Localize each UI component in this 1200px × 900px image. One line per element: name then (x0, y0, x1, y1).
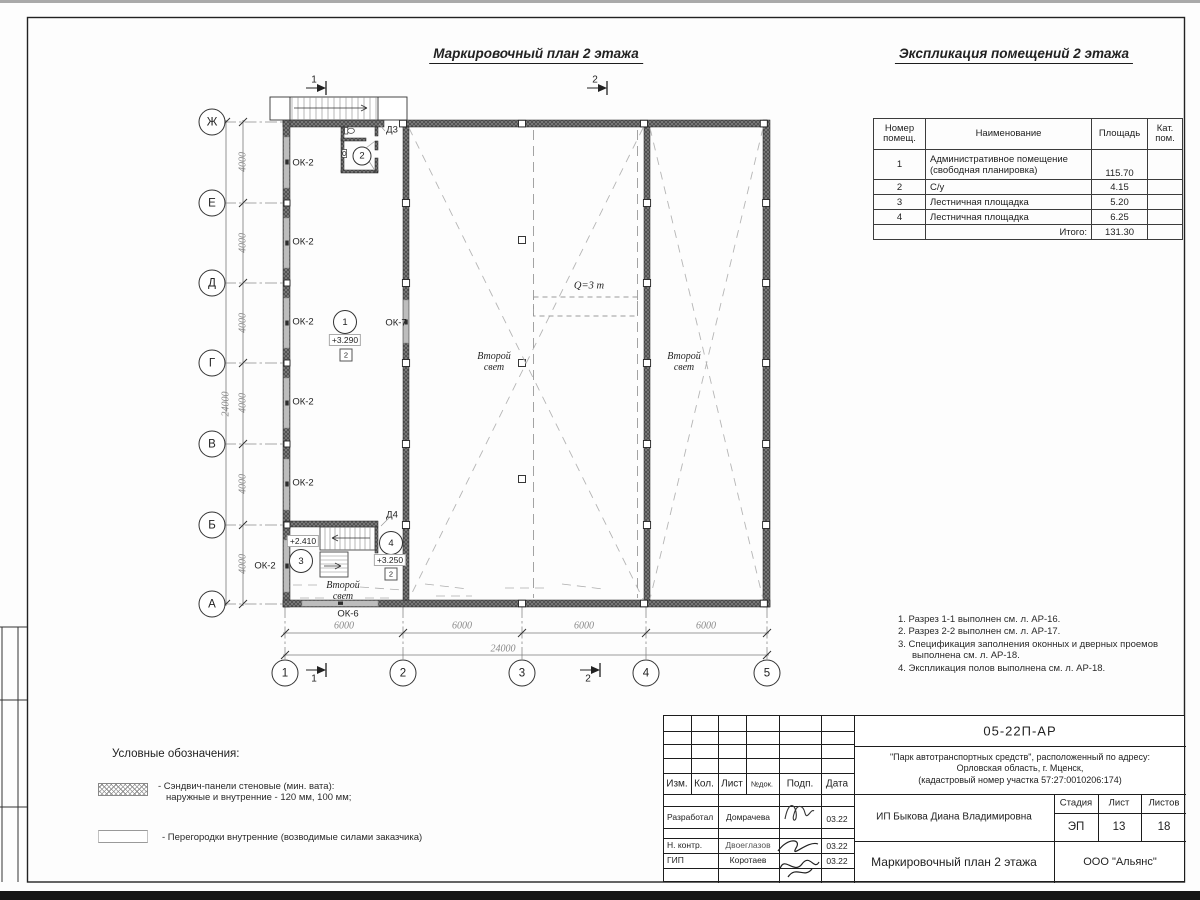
tb-date-2: 03.22 (826, 841, 847, 851)
crane-capacity-label: Q=3 т (574, 281, 604, 292)
notes-list: 1. Разрез 1-1 выполнен см. л. АР-16.2. Р… (898, 614, 1190, 675)
room-tag-2: 2 (353, 147, 372, 166)
dim-4000-6: 4000 (238, 554, 249, 574)
room-tag-1: 1 (333, 310, 357, 334)
cell-cat (1148, 150, 1183, 180)
col-header-num: Номер помещ. (874, 119, 926, 150)
level-mark: +2.410 (287, 535, 319, 547)
cell-name: Лестничная площадка (926, 210, 1092, 225)
cell-total-value: 131.30 (1092, 225, 1148, 240)
cell-num: 4 (874, 210, 926, 225)
tb-doc-code: 05-22П-АР (983, 724, 1056, 739)
cell-name: Административное помещение (свободная пл… (926, 150, 1092, 180)
dim-6000-1: 6000 (334, 621, 354, 632)
cell-num: 1 (874, 150, 926, 180)
window-label-ok2-4: ОК-2 (292, 397, 313, 408)
signature-1 (781, 799, 817, 826)
tb-stage-value: ЭП (1068, 821, 1085, 833)
signature-2 (774, 835, 822, 881)
cell-cat (1148, 210, 1183, 225)
tb-name-2: Двоеглазов (725, 840, 770, 850)
tb-sheet-label: Лист (1109, 798, 1130, 809)
axis-bubble-3: 3 (509, 660, 536, 687)
level-mark: +3.250 (374, 554, 406, 566)
cell-num: 2 (874, 180, 926, 195)
window-label-ok2-1: ОК-2 (292, 158, 313, 169)
sandwich-panel-swatch (98, 783, 148, 796)
dim-6000-4: 6000 (696, 621, 716, 632)
tb-role-2: Н. контр. (667, 840, 702, 850)
legend-sandwich-line1: - Сэндвич-панели стеновые (мин. вата): (158, 781, 351, 792)
cell-num (874, 225, 926, 240)
axis-bubble-2: 2 (390, 660, 417, 687)
axis-bubble-Ж: Ж (199, 109, 226, 136)
cell-area: 5.20 (1092, 195, 1148, 210)
explication-table: Номер помещ.НаименованиеПлощадьКат. пом.… (873, 118, 1183, 240)
tb-role-1: Разработал (667, 812, 713, 822)
level-mark: +3.290 (329, 334, 361, 346)
dim-6000-3: 6000 (574, 621, 594, 632)
axis-bubble-5: 5 (754, 660, 781, 687)
cell-area: 115.70 (1092, 150, 1148, 180)
dim-4000-2: 4000 (238, 233, 249, 253)
room-tag-4: 4 (379, 531, 403, 555)
plan-title: Маркировочный план 2 этажа (429, 46, 643, 64)
section-mark-1-top: 1 (311, 75, 317, 86)
cell-cat (1148, 195, 1183, 210)
dim-4000-1: 4000 (238, 152, 249, 172)
tb-drawing-title: Маркировочный план 2 этажа (871, 855, 1037, 869)
scan-artifact-bottom (0, 891, 1200, 900)
tb-client: ИП Быкова Диана Владимировна (876, 812, 1032, 823)
axis-bubble-Е: Е (199, 190, 226, 217)
axis-bubble-В: В (199, 431, 226, 458)
window-label-ok2-2: ОК-2 (292, 237, 313, 248)
tb-col-izm: Изм. (666, 779, 687, 790)
explication-title: Экспликация помещений 2 этажа (895, 46, 1133, 64)
room-tag-3: 3 (289, 549, 313, 573)
legend-item-partition: - Перегородки внутренние (возводимые сил… (162, 832, 422, 843)
window-label-ok6: ОК-6 (337, 609, 358, 620)
legend-sandwich-line2: наружные и внутренние - 120 мм, 100 мм; (158, 792, 351, 803)
tb-sheet-value: 13 (1113, 821, 1126, 833)
tb-stage-label: Стадия (1060, 798, 1092, 809)
tb-org: ООО "Альянс" (1083, 856, 1157, 868)
dim-24000-left: 24000 (221, 392, 232, 417)
note-2: 2. Разрез 2-2 выполнен см. л. АР-17. (898, 626, 1190, 637)
legend-heading: Условные обозначения: (112, 748, 239, 760)
tb-sheets-label: Листов (1149, 798, 1180, 809)
second-light-label-1: Второй свет (477, 351, 510, 373)
second-light-label-2: Второй свет (667, 351, 700, 373)
axis-bubble-Д: Д (199, 270, 226, 297)
col-header-name: Наименование (926, 119, 1092, 150)
section-mark-2-top: 2 (592, 75, 598, 86)
axis-bubble-4: 4 (633, 660, 660, 687)
cell-cat (1148, 225, 1183, 240)
title-block: Изм. Кол. Лист №док. Подп. Дата Разработ… (663, 715, 1185, 882)
cell-area: 4.15 (1092, 180, 1148, 195)
window-label-ok2-3: ОК-2 (292, 317, 313, 328)
section-mark-2-bottom: 2 (585, 674, 591, 685)
window-label-ok2-5: ОК-2 (292, 478, 313, 489)
axis-bubble-Г: Г (199, 350, 226, 377)
cell-total-label: Итого: (926, 225, 1092, 240)
cell-name: С/у (926, 180, 1092, 195)
tb-col-ndok: №док. (751, 780, 773, 789)
tb-date-1: 03.22 (826, 814, 847, 824)
door-label-d4: Д4 (386, 510, 398, 521)
section-mark-1-bottom: 1 (311, 674, 317, 685)
cell-name: Лестничная площадка (926, 195, 1092, 210)
tb-col-kol: Кол. (694, 779, 714, 790)
tb-name-1: Домрачева (726, 812, 770, 822)
tb-date-3: 03.22 (826, 856, 847, 866)
cell-area: 6.25 (1092, 210, 1148, 225)
cell-cat (1148, 180, 1183, 195)
col-header-area: Площадь (1092, 119, 1148, 150)
tb-name-3: Коротаев (730, 855, 767, 865)
tb-role-3: ГИП (667, 855, 684, 865)
dim-4000-5: 4000 (238, 474, 249, 494)
axis-bubble-1: 1 (272, 660, 299, 687)
drawing-sheet: ОК-2ОК-2ОК-2ОК-2ОК-2ОК-2ОК-7ОК-6Д3Д4Втор… (0, 0, 1200, 900)
dim-4000-4: 4000 (238, 393, 249, 413)
legend-item-sandwich: - Сэндвич-панели стеновые (мин. вата): н… (158, 781, 351, 803)
door-label-d3: Д3 (386, 125, 398, 136)
note-4: 4. Экспликация полов выполнена см. л. АР… (898, 663, 1190, 674)
tb-sheets-value: 18 (1158, 821, 1171, 833)
axis-bubble-Б: Б (199, 512, 226, 539)
window-label-ok7: ОК-7 (385, 318, 406, 329)
tb-col-data: Дата (826, 779, 848, 790)
window-label-ok2-6: ОК-2 (254, 561, 275, 572)
dim-6000-2: 6000 (452, 621, 472, 632)
tb-col-list: Лист (721, 779, 743, 790)
tb-col-podp: Подп. (787, 779, 814, 790)
axis-bubble-А: А (199, 591, 226, 618)
note-3: 3. Спецификация заполнения оконных и две… (898, 639, 1190, 662)
dim-24000-bottom: 24000 (491, 644, 516, 655)
tb-project: "Парк автотранспортных средств", располо… (855, 752, 1185, 786)
col-header-cat: Кат. пом. (1148, 119, 1183, 150)
note-1: 1. Разрез 1-1 выполнен см. л. АР-16. (898, 614, 1190, 625)
zone-mark: 2 (340, 349, 353, 362)
second-light-label-3: Второй свет (326, 580, 359, 602)
partition-swatch (98, 830, 148, 843)
dim-4000-3: 4000 (238, 313, 249, 333)
cell-num: 3 (874, 195, 926, 210)
zone-mark: 2 (385, 568, 398, 581)
